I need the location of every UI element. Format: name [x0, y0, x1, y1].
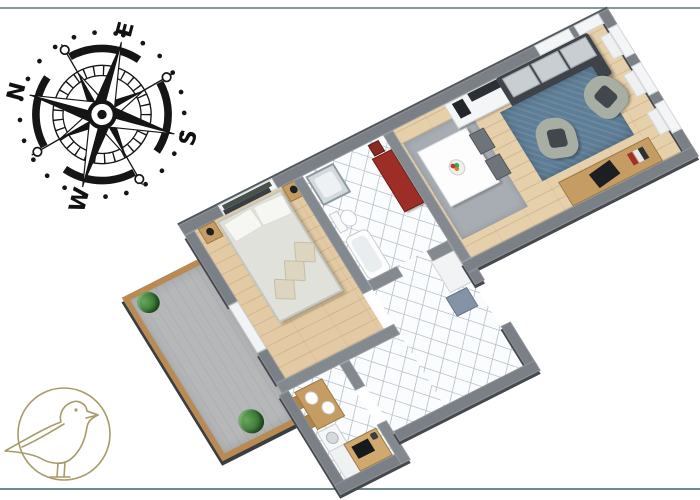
top-border-line [0, 7, 700, 9]
bed-cushion [274, 279, 296, 300]
compass-letter-s: S [175, 127, 202, 149]
compass-rose: N E S W [2, 12, 202, 217]
bed-cushion [294, 242, 316, 263]
seagull-body [5, 401, 98, 463]
seagull-logo [2, 377, 127, 495]
bed-cushion [284, 260, 306, 281]
seagull-eye [74, 408, 77, 411]
floorplan-image: N E S W [0, 0, 700, 500]
compass-letter-n: N [3, 80, 32, 104]
compass-letter-w: W [65, 185, 95, 215]
seagull-legs [50, 462, 70, 477]
compass-letter-e: E [112, 19, 140, 40]
seagull-wing [22, 424, 64, 447]
seagull-beak [86, 411, 98, 418]
